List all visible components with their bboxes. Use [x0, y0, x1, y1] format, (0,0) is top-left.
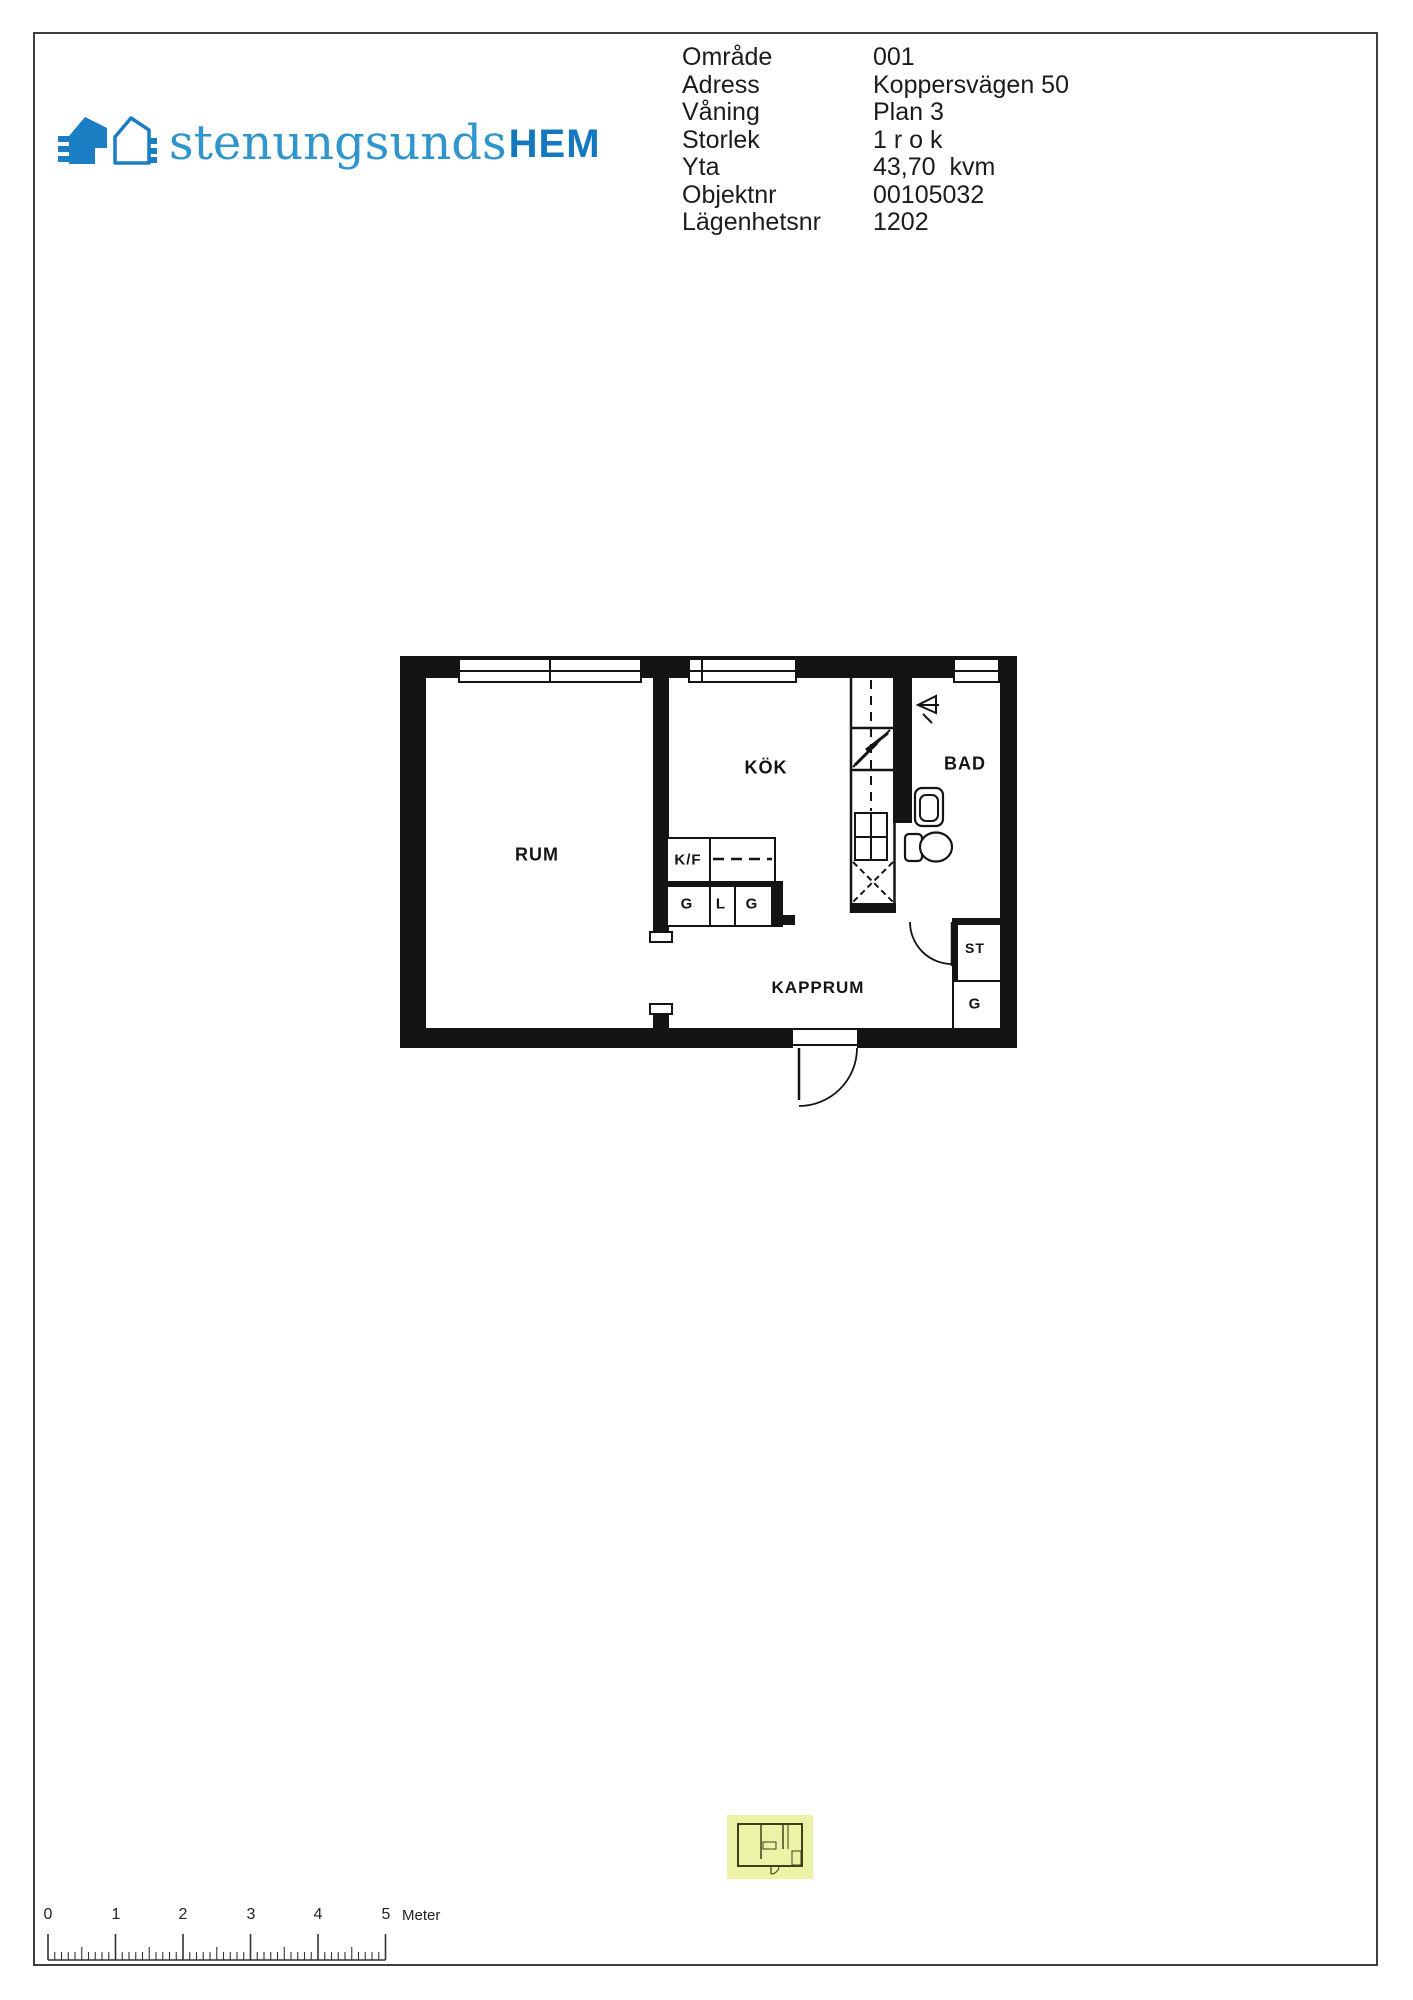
vent-icon [923, 714, 932, 723]
floorplan-document-page: { "logo": { "text_light": "stenungsunds"… [0, 0, 1413, 2000]
info-value: 1202 [873, 209, 929, 237]
info-value: 00105032 [873, 182, 984, 210]
label-g3: G [969, 996, 982, 1013]
logo-houses-icon [55, 112, 157, 168]
info-label: Objektnr [682, 182, 873, 210]
room-label-bad: BAD [944, 754, 986, 775]
info-row-yta: Yta 43,70 kvm [682, 154, 1069, 182]
apartment-info-table: Område 001 Adress Koppersvägen 50 Våning… [682, 44, 1069, 237]
info-row-storlek: Storlek 1 r o k [682, 127, 1069, 155]
info-row-vaning: Våning Plan 3 [682, 99, 1069, 127]
company-logo: stenungsunds HEM [55, 112, 601, 168]
info-value: 43,70 kvm [873, 154, 995, 182]
scale-unit-label: Meter [402, 1907, 440, 1924]
toilet-bowl [920, 833, 952, 862]
scale-tick-label: 5 [382, 1906, 391, 1924]
room-label-kapprum: KAPPRUM [772, 978, 865, 998]
scale-tick-label: 0 [44, 1906, 53, 1924]
info-label: Yta [682, 154, 873, 182]
info-label: Område [682, 44, 873, 72]
label-kf: K/F [674, 852, 701, 869]
info-value: Koppersvägen 50 [873, 72, 1069, 100]
info-label: Adress [682, 72, 873, 100]
floor-plan-drawing: RUM KÖK BAD KAPPRUM K/F G L G ST G [400, 656, 1017, 1126]
scale-bar: 0 1 2 3 4 5 Meter [46, 1906, 476, 1968]
room-label-rum: RUM [515, 845, 559, 866]
logo-text-light: stenungsunds [169, 118, 507, 168]
info-row-omrade: Område 001 [682, 44, 1069, 72]
scale-tick-label: 4 [314, 1906, 323, 1924]
logo-text-bold: HEM [509, 120, 601, 168]
info-label: Lägenhetsnr [682, 209, 873, 237]
floorplan-thumbnail[interactable] [727, 1815, 813, 1879]
info-row-lagenhetsnr: Lägenhetsnr 1202 [682, 209, 1069, 237]
plan-detail-drawing [400, 656, 1017, 1126]
scale-tick-label: 2 [179, 1906, 188, 1924]
shaft-cross [853, 862, 893, 902]
label-g1: G [681, 896, 694, 913]
label-l: L [716, 896, 726, 913]
info-row-adress: Adress Koppersvägen 50 [682, 72, 1069, 100]
scale-ruler-svg [46, 1930, 396, 1964]
shaft-cross [853, 862, 893, 902]
info-row-objektnr: Objektnr 00105032 [682, 182, 1069, 210]
entrance-door-arc [799, 1048, 857, 1106]
scale-tick-label: 1 [112, 1906, 121, 1924]
info-label: Våning [682, 99, 873, 127]
label-st: ST [965, 940, 985, 956]
scale-tick-label: 3 [247, 1906, 256, 1924]
label-g2: G [746, 896, 759, 913]
info-label: Storlek [682, 127, 873, 155]
info-value: 001 [873, 44, 915, 72]
thumbnail-drawing [727, 1815, 813, 1879]
info-value: Plan 3 [873, 99, 944, 127]
info-value: 1 r o k [873, 127, 942, 155]
room-label-kok: KÖK [745, 758, 788, 779]
bad-door-arc [910, 922, 952, 964]
